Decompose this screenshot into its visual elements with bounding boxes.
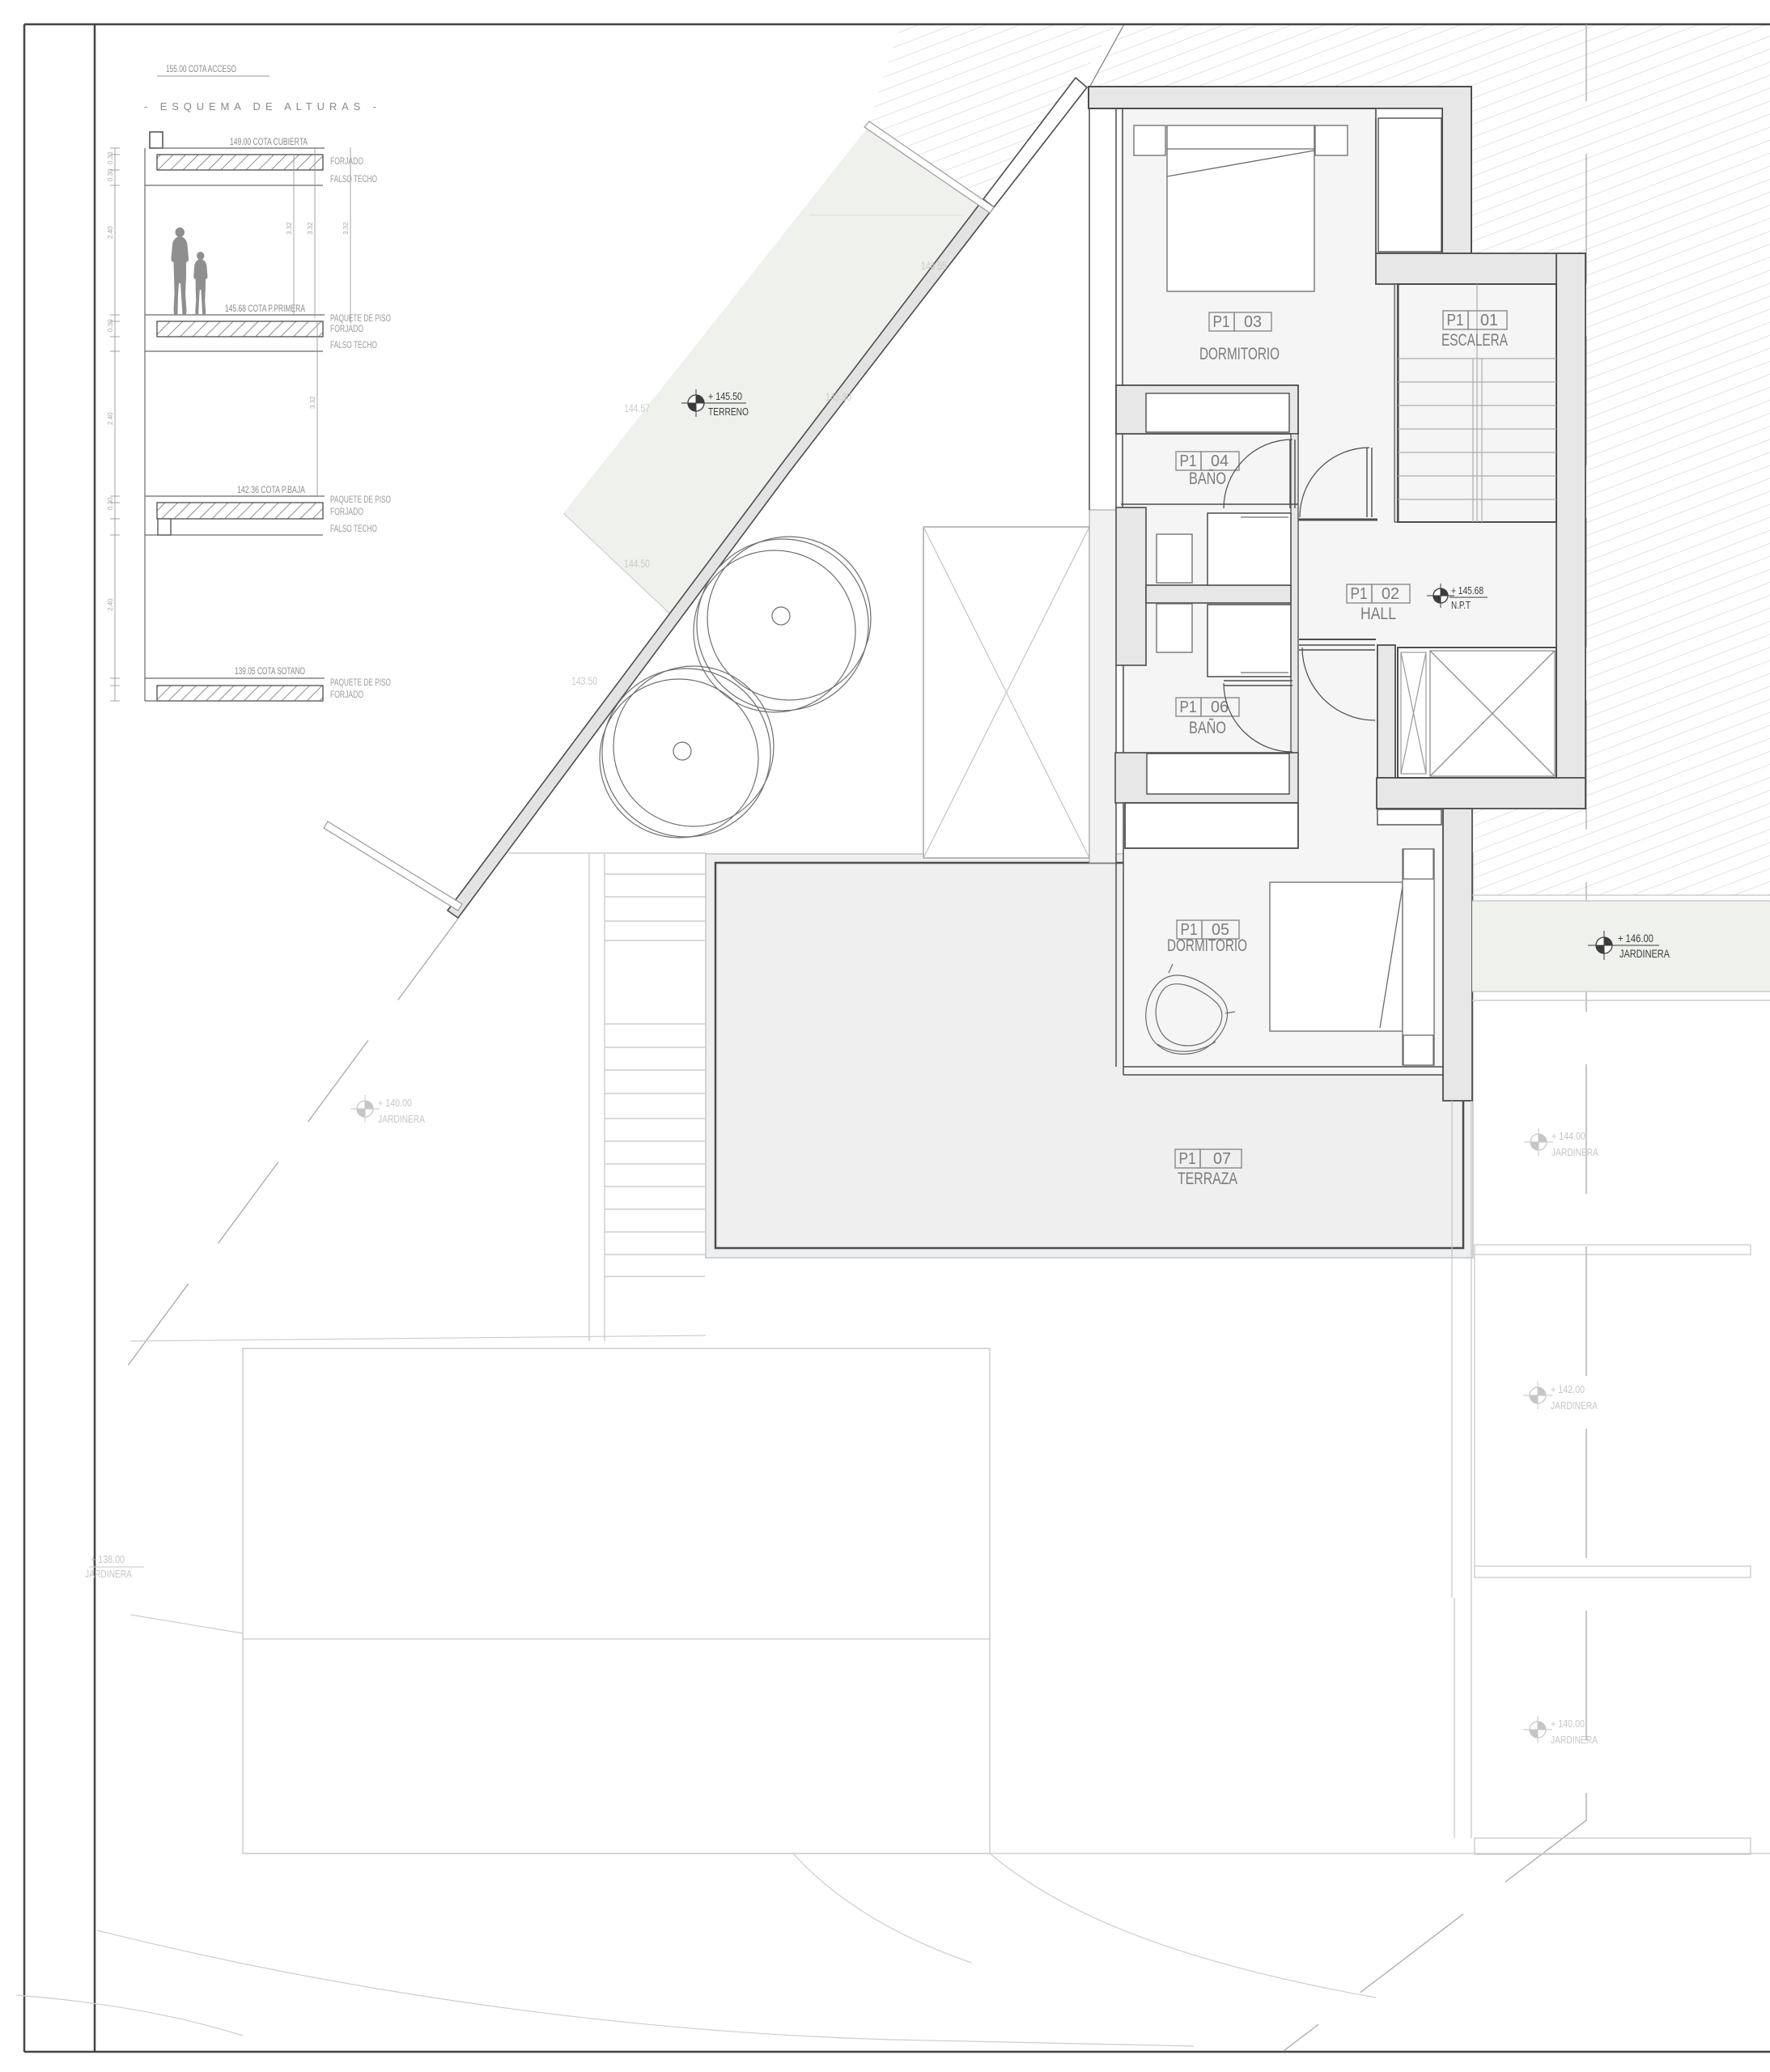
svg-text:JARDINERA: JARDINERA <box>85 1568 132 1580</box>
svg-text:P1: P1 <box>1213 313 1230 331</box>
svg-text:N.P.T: N.P.T <box>1451 599 1471 611</box>
svg-text:+ 140.00: + 140.00 <box>1551 1717 1585 1730</box>
svg-text:JARDINERA: JARDINERA <box>1551 1399 1598 1412</box>
svg-text:BAÑO: BAÑO <box>1189 718 1226 737</box>
svg-text:TERRAZA: TERRAZA <box>1178 1170 1237 1188</box>
svg-text:142.36 COTA P.BAJA: 142.36 COTA P.BAJA <box>237 484 305 495</box>
svg-text:155.00 COTA ACCESO: 155.00 COTA ACCESO <box>166 63 236 74</box>
svg-text:P1: P1 <box>1351 585 1368 603</box>
svg-text:0.30: 0.30 <box>107 497 114 510</box>
svg-text:+ 144.00: + 144.00 <box>1551 1130 1585 1142</box>
svg-text:DORMITORIO: DORMITORIO <box>1199 345 1280 363</box>
svg-text:145.30: 145.30 <box>826 390 851 403</box>
svg-text:+ 145.68: + 145.68 <box>1451 584 1483 597</box>
svg-text:0.30: 0.30 <box>107 168 114 181</box>
svg-text:3.32: 3.32 <box>342 222 350 235</box>
svg-text:3.32: 3.32 <box>286 222 293 235</box>
svg-text:FORJADO: FORJADO <box>330 506 363 517</box>
svg-text:DORMITORIO: DORMITORIO <box>1167 936 1247 955</box>
svg-text:149.00 COTA CUBIERTA: 149.00 COTA CUBIERTA <box>230 136 308 147</box>
svg-text:P1: P1 <box>1179 1150 1196 1168</box>
svg-text:FALSO TECHO: FALSO TECHO <box>330 339 377 350</box>
svg-text:ESCALERA: ESCALERA <box>1441 331 1508 350</box>
svg-text:144.50: 144.50 <box>624 557 650 570</box>
svg-text:P1: P1 <box>1447 312 1464 329</box>
svg-text:FALSO TECHO: FALSO TECHO <box>330 523 377 534</box>
svg-text:PAQUETE DE PISO: PAQUETE DE PISO <box>330 312 391 324</box>
svg-text:146.55: 146.55 <box>921 259 947 272</box>
svg-text:2.40: 2.40 <box>107 598 114 611</box>
svg-text:2.40: 2.40 <box>107 226 114 239</box>
svg-text:JARDINERA: JARDINERA <box>1551 1146 1598 1158</box>
svg-text:+ 142.00: + 142.00 <box>1551 1383 1585 1395</box>
svg-text:02: 02 <box>1382 585 1399 603</box>
svg-text:0.30: 0.30 <box>107 151 114 164</box>
svg-text:FORJADO: FORJADO <box>330 689 363 700</box>
svg-text:P1: P1 <box>1180 452 1197 470</box>
svg-text:0.30: 0.30 <box>107 319 114 332</box>
svg-text:3.32: 3.32 <box>307 222 314 235</box>
svg-text:143.50: 143.50 <box>571 674 597 687</box>
svg-text:JARDINERA: JARDINERA <box>1619 947 1670 960</box>
svg-text:P1: P1 <box>1180 698 1197 716</box>
svg-text:01: 01 <box>1480 312 1498 329</box>
svg-text:PAQUETE DE PISO: PAQUETE DE PISO <box>330 677 391 688</box>
svg-text:FALSO TECHO: FALSO TECHO <box>330 173 377 185</box>
svg-text:+ 140.00: + 140.00 <box>378 1097 412 1109</box>
svg-text:JARDINERA: JARDINERA <box>378 1113 425 1125</box>
svg-text:03: 03 <box>1244 313 1262 331</box>
svg-text:JARDINERA: JARDINERA <box>1551 1734 1598 1746</box>
svg-text:07: 07 <box>1213 1150 1231 1168</box>
svg-text:144.57: 144.57 <box>624 401 650 414</box>
svg-text:FORJADO: FORJADO <box>330 323 363 334</box>
svg-text:TERRENO: TERRENO <box>708 405 749 418</box>
svg-text:139.05 COTA SOTANO: 139.05 COTA SOTANO <box>235 665 305 677</box>
svg-text:+ 145.50: + 145.50 <box>708 390 742 402</box>
svg-text:145.68 COTA P.PRIMERA: 145.68 COTA P.PRIMERA <box>225 303 305 314</box>
svg-text:04: 04 <box>1211 452 1229 470</box>
svg-text:2.40: 2.40 <box>107 412 114 425</box>
svg-text:- ESQUEMA DE ALTURAS -: - ESQUEMA DE ALTURAS - <box>144 100 384 113</box>
svg-text:FORJADO: FORJADO <box>330 155 363 167</box>
svg-text:HALL: HALL <box>1360 605 1396 623</box>
svg-text:PAQUETE DE PISO: PAQUETE DE PISO <box>330 494 391 505</box>
svg-text:BAÑO: BAÑO <box>1189 469 1226 488</box>
svg-text:+ 146.00: + 146.00 <box>1618 932 1653 945</box>
svg-text:+ 138.00: + 138.00 <box>91 1553 125 1565</box>
svg-text:3.32: 3.32 <box>309 396 316 409</box>
